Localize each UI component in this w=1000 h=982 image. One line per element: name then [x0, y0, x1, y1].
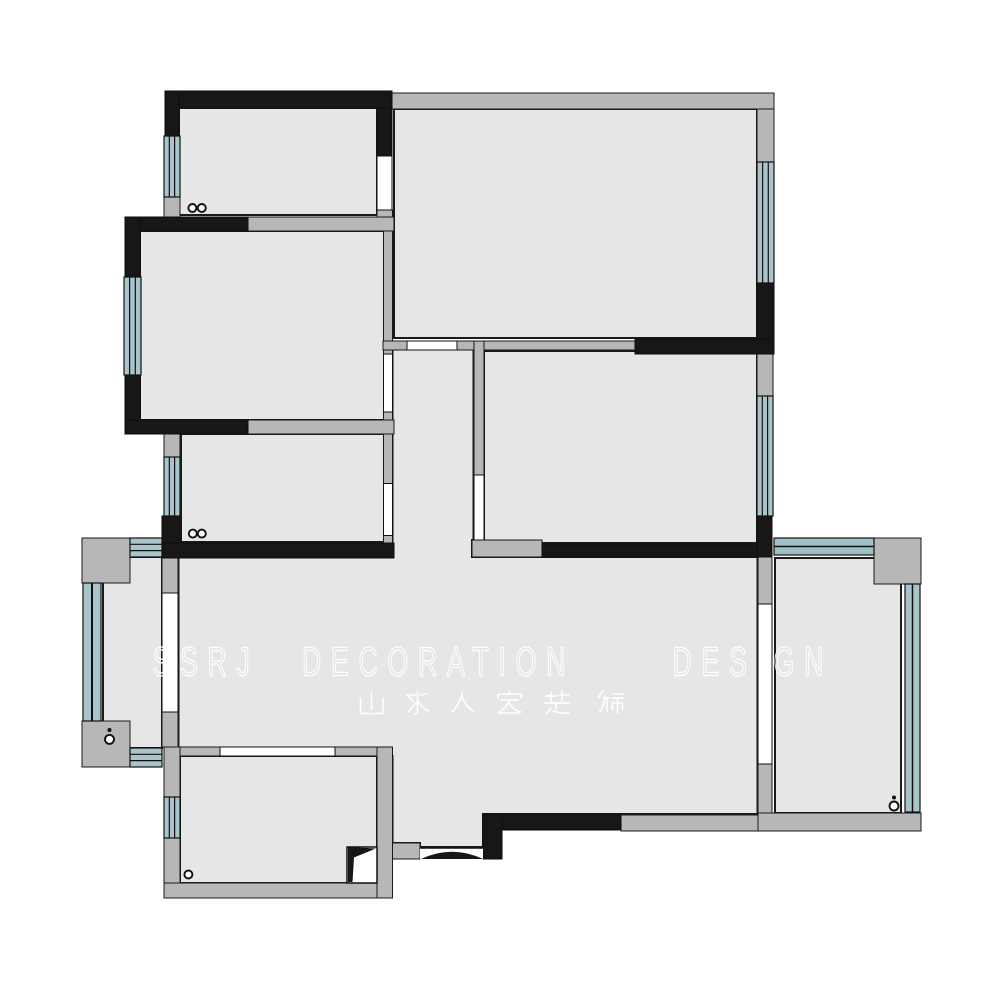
svg-text:SSRJ: SSRJ [153, 640, 260, 685]
svg-text:DECORATION: DECORATION [302, 640, 575, 685]
svg-text:DESIGN: DESIGN [673, 640, 834, 685]
